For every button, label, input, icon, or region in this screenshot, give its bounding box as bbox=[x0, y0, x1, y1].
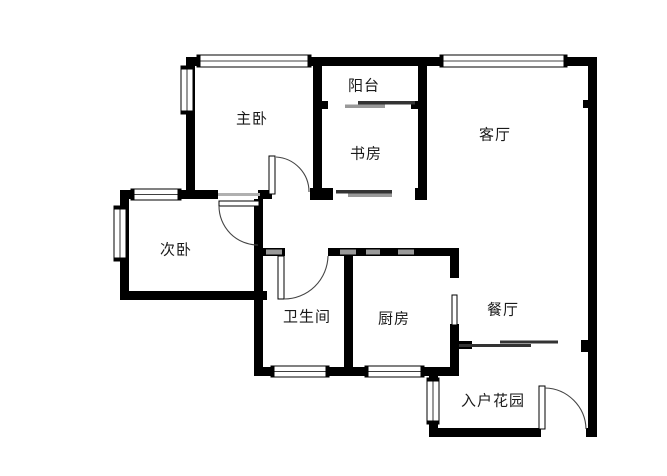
window-symbol bbox=[114, 206, 126, 261]
room-label-balcony: 阳台 bbox=[348, 77, 380, 95]
room-label-second-bedroom: 次卧 bbox=[160, 241, 192, 259]
window-symbol bbox=[131, 189, 181, 200]
entry-door-leaf bbox=[539, 386, 545, 429]
sliding-door-leaf bbox=[345, 105, 385, 109]
window-symbol bbox=[427, 378, 439, 424]
floorplan-svg: 主卧阳台书房客厅次卧卫生间厨房餐厅入户花园 bbox=[0, 0, 667, 476]
bathroom-door-leaf bbox=[278, 256, 284, 299]
room-label-bathroom: 卫生间 bbox=[283, 308, 331, 326]
sliding-door-leaf bbox=[336, 190, 392, 194]
bathroom-door-arc bbox=[284, 256, 328, 299]
master-bedroom-door-leaf bbox=[269, 156, 275, 194]
sliding-doors-layer bbox=[336, 101, 558, 347]
room-label-study: 书房 bbox=[350, 145, 382, 163]
window-symbol bbox=[271, 366, 329, 377]
window-symbol bbox=[197, 55, 311, 67]
sliding-door-leaf bbox=[500, 341, 558, 344]
lintel-layer bbox=[218, 193, 260, 196]
sliding-door-leaf bbox=[358, 101, 415, 105]
room-label-master-bedroom: 主卧 bbox=[236, 110, 268, 128]
door-arc-layer bbox=[219, 157, 586, 429]
sliding-door-leaf bbox=[459, 344, 531, 347]
second-bedroom-door-leaf bbox=[219, 201, 259, 206]
window-symbol bbox=[440, 55, 567, 67]
master-bedroom-door-arc bbox=[276, 157, 309, 192]
second-bedroom-door-arc bbox=[219, 206, 258, 245]
window-symbol bbox=[181, 66, 193, 114]
kitchen-door-leaf bbox=[452, 295, 457, 325]
room-label-dining-room: 餐厅 bbox=[487, 301, 519, 319]
room-label-kitchen: 厨房 bbox=[378, 310, 410, 328]
room-labels-layer: 主卧阳台书房客厅次卧卫生间厨房餐厅入户花园 bbox=[160, 77, 525, 410]
room-label-living-room: 客厅 bbox=[479, 126, 511, 144]
floorplan-canvas: 主卧阳台书房客厅次卧卫生间厨房餐厅入户花园 bbox=[0, 0, 667, 476]
sliding-door-leaf bbox=[348, 194, 392, 198]
window-symbol bbox=[365, 366, 424, 377]
room-label-entry-garden: 入户花园 bbox=[461, 392, 525, 410]
entry-door-arc bbox=[545, 388, 586, 429]
